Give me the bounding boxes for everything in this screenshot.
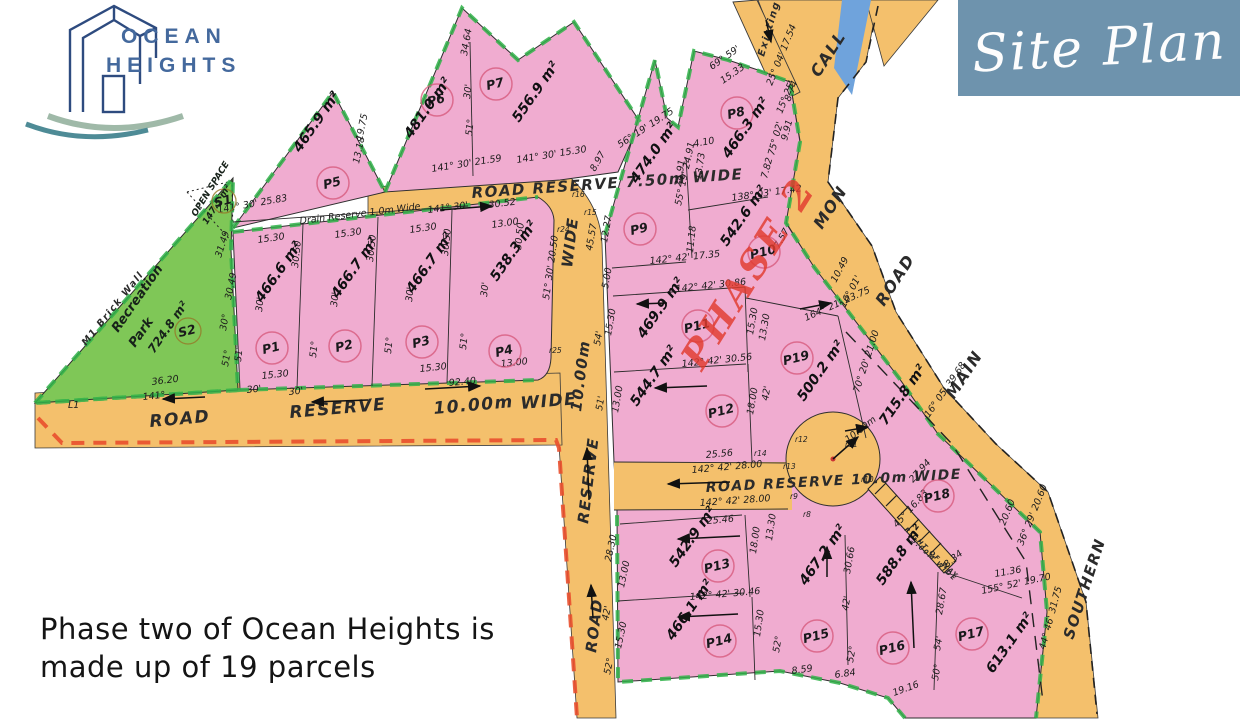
dimension-label: 30' <box>288 386 304 398</box>
caption: Phase two of Ocean Heights is made up of… <box>40 610 560 687</box>
curve-marker: r14 <box>754 449 767 458</box>
curve-marker: r25 <box>549 346 562 355</box>
curve-marker: r8 <box>803 510 811 519</box>
curve-marker: r9 <box>790 492 798 501</box>
dimension-label: 51° <box>308 340 321 358</box>
caption-line-1: Phase two of Ocean Heights is <box>40 610 560 648</box>
logo-text-heights: HEIGHTS <box>106 54 238 77</box>
survey-arrow <box>637 303 667 304</box>
dimension-label: 51° <box>458 332 471 350</box>
curve-marker: r24 <box>557 225 570 234</box>
site-plan-title: Site Plan <box>970 11 1227 84</box>
dimension-label: 30' <box>462 84 474 100</box>
dimension-label: 30' <box>479 282 491 298</box>
wave-icon <box>26 116 183 137</box>
dimension-label: 51° <box>464 118 477 136</box>
logo-text-ocean: OCEAN <box>121 25 227 48</box>
site-plan-page: ROAD RESERVE 7.50m WIDEROADRESERVE10.00m… <box>0 0 1240 720</box>
curve-marker: r16 <box>572 190 585 199</box>
dimension-label: L1 <box>68 400 79 411</box>
curve-marker: r10 <box>861 475 874 484</box>
dimension-label: 51° <box>233 344 246 362</box>
dimension-label: 30' <box>246 384 262 396</box>
curve-marker: r12 <box>795 435 808 444</box>
ocean-heights-logo: OCEAN HEIGHTS <box>8 0 238 140</box>
dimension-label: 51° <box>383 336 396 354</box>
curve-marker: r15 <box>584 208 597 217</box>
curve-marker: r13 <box>783 462 796 471</box>
caption-line-2: made up of 19 parcels <box>40 648 560 686</box>
site-plan-badge: Site Plan <box>958 0 1240 96</box>
